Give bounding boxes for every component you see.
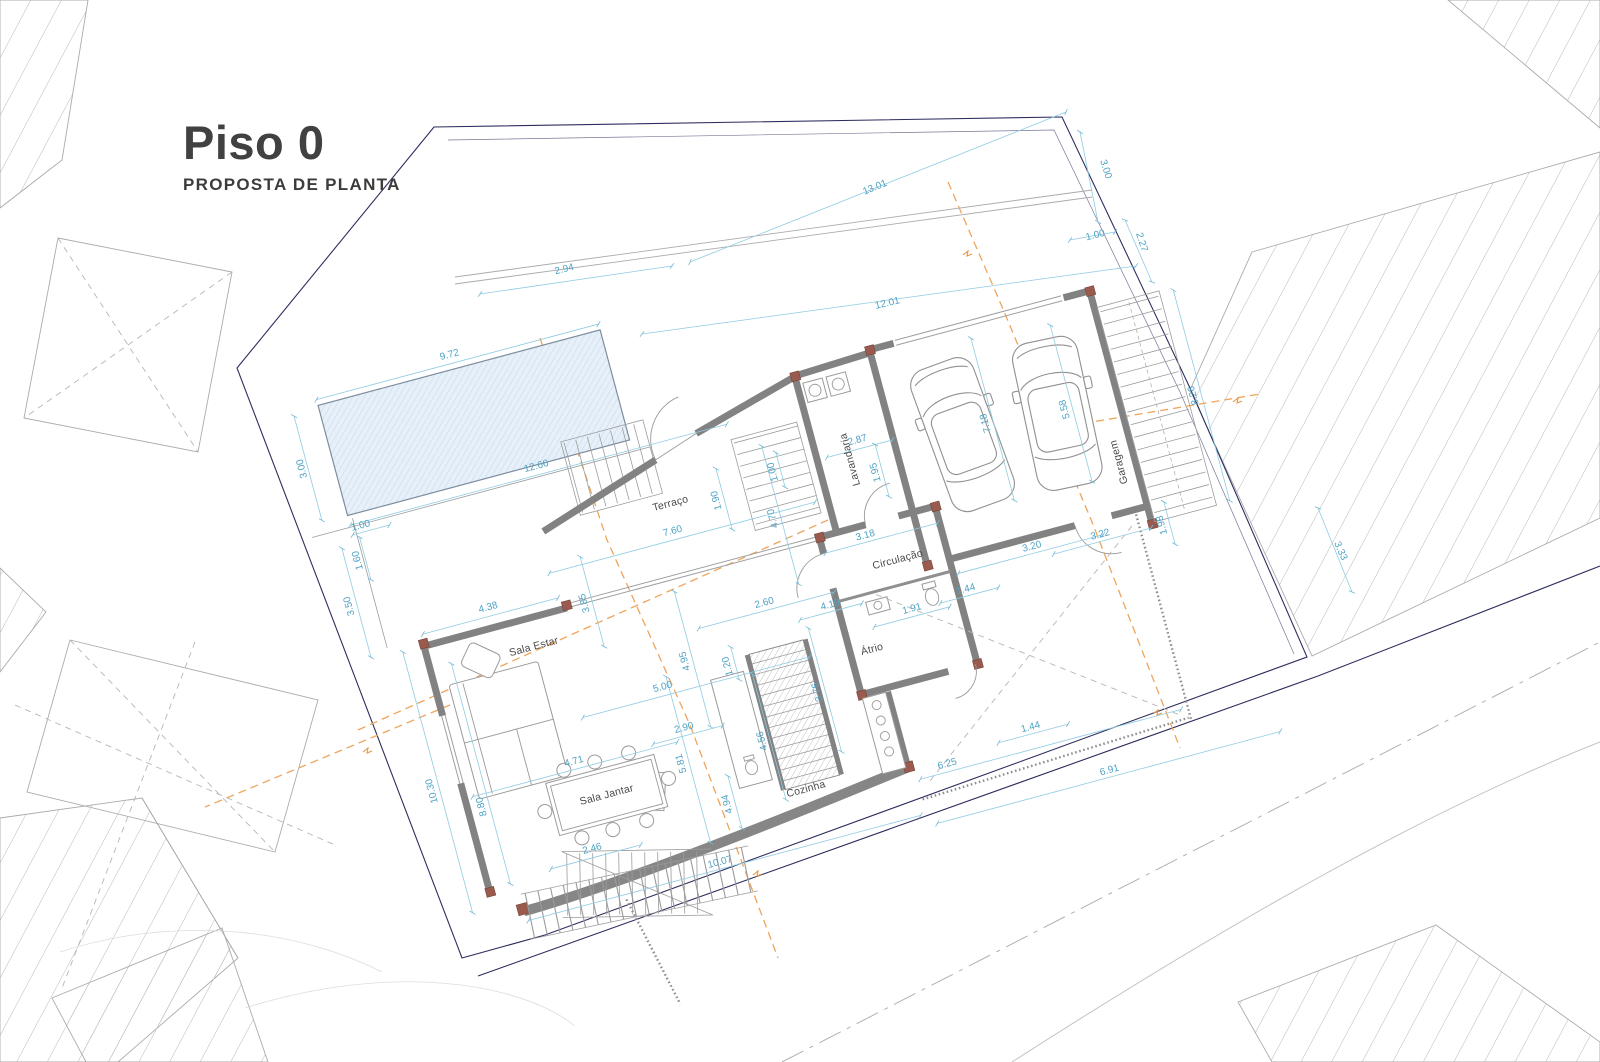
room-label-atrium: Átrio [859,640,884,658]
dim-label: 7.60 [662,523,684,539]
title-block: Piso 0 PROPOSTA DE PLANTA [183,118,401,195]
room-label-hall: Circulação [871,547,924,572]
neighbour-roof-hatch [1190,152,1600,656]
dim-label: 4.38 [477,600,499,616]
neighbour-roof-hatch [0,0,88,208]
dimension-labels-plan: 9.72 3.00 12.66 1.00 1.60 3.50 4.38 7.60… [277,165,1289,959]
neighbour-roof-hatch [0,568,46,672]
dim-label: 10.30 [424,777,441,804]
dim-label: 3.00 [294,457,310,479]
neighbour-outline [24,238,232,452]
dim-label: 1.44 [1020,720,1042,736]
neighbour-roof-hatch [1448,0,1600,128]
dim-label: 3.22 [1089,527,1111,543]
dim-label: 1.00 [1085,228,1107,243]
dim-label: 1.95 [868,461,884,483]
dim-label: 10.07 [707,854,734,871]
room-label-living: Sala Estar [508,634,560,659]
car-2 [1003,332,1112,495]
dim-label: 13.01 [861,178,889,198]
dim-label: 2.27 [1133,231,1150,253]
dim-label: 6.91 [1099,763,1121,779]
laundry-appliances [803,372,851,403]
car-1 [899,350,1025,518]
room-label-garage: Garagem [1107,439,1130,486]
page-subtitle: PROPOSTA DE PLANTA [183,175,401,195]
dim-label: 9.72 [439,347,461,363]
dim-label: 3.00 [1097,158,1114,180]
terrain-contour [245,982,575,1026]
dim-label: 2.94 [554,262,576,277]
page-title: Piso 0 [183,118,401,167]
dim-label: 12.01 [874,295,901,311]
house-plan: 9.72 3.00 12.66 1.00 1.60 3.50 4.38 7.60… [274,165,1319,1062]
neighbour-roof-hatch [1238,925,1600,1062]
drawing-sheet: Piso 0 PROPOSTA DE PLANTA [0,0,1600,1062]
dimension-lines-plan [291,178,1290,957]
sofa [449,661,568,799]
room-label-terrace: Terraço [651,493,689,514]
